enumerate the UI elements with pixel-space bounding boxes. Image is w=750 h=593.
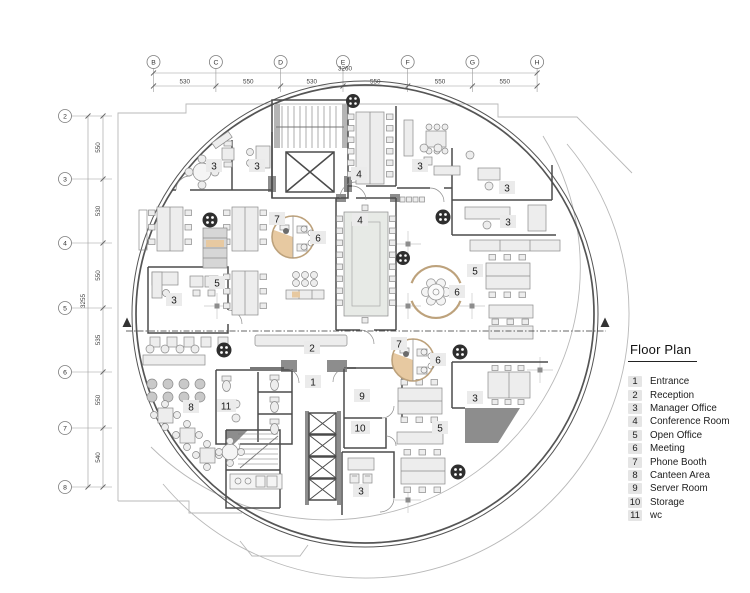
grid-number: 4 <box>63 240 67 247</box>
desk-cluster-a <box>139 207 192 251</box>
grid-letter: B <box>151 59 156 66</box>
legend-item-wc: 11 wc <box>628 509 746 522</box>
legend-item-label: Server Room <box>650 483 708 494</box>
desk-cluster-e <box>489 319 533 339</box>
dim-segment: 535 <box>95 334 102 345</box>
legend-item-label: Storage <box>650 497 684 508</box>
legend-item-open-office: 5 Open Office <box>628 429 746 442</box>
dim-total-top: 3260 <box>338 66 353 73</box>
legend-item-number: 10 <box>628 497 642 508</box>
room-label: 9 <box>359 392 365 403</box>
legend-item-number: 8 <box>628 470 642 481</box>
right-manager-desks <box>465 151 560 251</box>
desk-cluster-g <box>401 450 445 493</box>
room-label: 7 <box>396 340 402 351</box>
grid-number: 6 <box>63 369 67 376</box>
legend-panel: Floor Plan 1 Entrance 2 Reception 3 Mana… <box>628 342 746 522</box>
grid-letter: D <box>278 59 283 66</box>
grid-letter: H <box>535 59 540 66</box>
dim-segment: 550 <box>435 79 446 86</box>
room-label: 5 <box>472 267 478 278</box>
left-grid-bubbles: 2 3 4 5 6 7 8 3255 550 530 550 535 550 5… <box>59 110 103 494</box>
grid-number: 5 <box>63 305 67 312</box>
locker-unit <box>203 228 227 268</box>
room-label: 3 <box>254 162 260 173</box>
dim-segment: 530 <box>95 205 102 216</box>
room-label: 2 <box>309 344 315 355</box>
legend-item-label: wc <box>650 510 662 521</box>
room-label: 4 <box>357 216 363 227</box>
room-label: 6 <box>315 234 321 245</box>
room-label: 6 <box>435 356 441 367</box>
grid-number: 8 <box>63 484 67 491</box>
reception-desk <box>255 335 347 346</box>
legend-item-number: 6 <box>628 443 642 454</box>
legend-item-server-room: 9 Server Room <box>628 482 746 495</box>
legend-item-reception: 2 Reception <box>628 388 746 401</box>
legend-item-number: 4 <box>628 416 642 427</box>
legend-item-manager-office: 3 Manager Office <box>628 402 746 415</box>
room-label: 3 <box>504 184 510 195</box>
floor-plan-page: B C D E F G H 3260 530 550 530 550 550 5… <box>0 0 750 593</box>
grid-letter: C <box>213 59 218 66</box>
legend-item-number: 3 <box>628 403 642 414</box>
room-label: 3 <box>211 162 217 173</box>
room-label: 3 <box>358 487 364 498</box>
legend-item-number: 7 <box>628 457 642 468</box>
desk-cluster-d <box>486 255 530 298</box>
lounge-seats <box>286 272 324 300</box>
plain-table-right <box>489 305 533 318</box>
legend-title: Floor Plan <box>628 342 697 362</box>
dim-segment: 550 <box>95 142 102 153</box>
room-label: 10 <box>354 424 366 435</box>
dim-segment: 530 <box>307 79 318 86</box>
room-label: 1 <box>310 378 316 389</box>
legend-item-storage: 10 Storage <box>628 496 746 509</box>
grid-number: 3 <box>63 176 67 183</box>
legend-item-label: Open Office <box>650 430 702 441</box>
dim-segment: 550 <box>95 270 102 281</box>
room-label: 6 <box>454 288 460 299</box>
grid-letter: G <box>470 59 475 66</box>
desk-cluster-b <box>224 207 267 251</box>
legend-item-conference-room: 4 Conference Room <box>628 415 746 428</box>
dim-segment: 530 <box>179 79 190 86</box>
room-label: 7 <box>274 215 280 226</box>
legend-item-label: Phone Booth <box>650 457 707 468</box>
dim-segment: 550 <box>499 79 510 86</box>
grid-number: 2 <box>63 113 67 120</box>
room-label: 3 <box>472 394 478 405</box>
legend-item-label: Conference Room <box>650 416 730 427</box>
bar-seats-row <box>150 337 228 347</box>
legend-item-meeting: 6 Meeting <box>628 442 746 455</box>
dim-segment: 550 <box>95 394 102 405</box>
legend-item-label: Manager Office <box>650 403 717 414</box>
dim-total-left: 3255 <box>80 294 87 309</box>
legend-item-phone-booth: 7 Phone Booth <box>628 455 746 468</box>
legend-item-number: 11 <box>628 510 642 521</box>
room-label: 3 <box>417 162 423 173</box>
top-grid-bubbles: B C D E F G H 3260 530 550 530 550 550 5… <box>147 56 544 86</box>
bottom-right-office-table <box>488 366 530 405</box>
left-manager-furniture <box>152 272 218 298</box>
grid-number: 7 <box>63 425 67 432</box>
meeting-flower-table <box>422 279 451 305</box>
room-label: 5 <box>214 279 220 290</box>
legend-item-entrance: 1 Entrance <box>628 375 746 388</box>
desk-cluster-c <box>224 271 267 315</box>
legend-item-label: Entrance <box>650 376 689 387</box>
grid-letter: F <box>406 59 410 66</box>
stair-rails <box>274 104 348 148</box>
legend-item-number: 5 <box>628 430 642 441</box>
dim-segment: 550 <box>243 79 254 86</box>
room-label: 3 <box>505 218 511 229</box>
room-label: 3 <box>171 296 177 307</box>
legend-item-number: 1 <box>628 376 642 387</box>
legend-item-number: 2 <box>628 390 642 401</box>
room-label: 11 <box>221 402 232 413</box>
room-label: 4 <box>356 170 362 181</box>
dim-segment: 540 <box>95 452 102 463</box>
legend-item-label: Canteen Area <box>650 470 710 481</box>
left-dimension-grid <box>72 114 113 490</box>
legend-item-number: 9 <box>628 483 642 494</box>
room-label: 5 <box>437 424 443 435</box>
legend-item-label: Reception <box>650 390 694 401</box>
bottom-manager-furniture <box>348 458 374 483</box>
room-label: 8 <box>188 403 194 414</box>
legend-item-canteen-area: 8 Canteen Area <box>628 469 746 482</box>
desk-cluster-f <box>398 380 442 423</box>
kitchen-counter <box>230 474 282 489</box>
legend-item-label: Meeting <box>650 443 685 454</box>
